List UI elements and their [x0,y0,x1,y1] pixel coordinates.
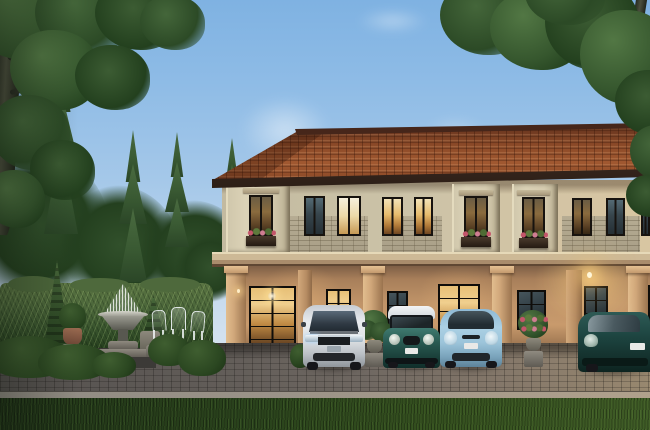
porch-column [226,267,246,348]
wheel [486,361,497,368]
column-capital [361,266,385,273]
wall-sconce [237,289,240,293]
terracotta-urn [63,328,82,345]
upper-window [304,196,325,236]
wheel [445,361,456,368]
hedge-top [8,276,58,292]
porch-cornice [212,252,650,267]
van-mirror [362,322,367,327]
flower-box [246,236,276,246]
teal-headlight [584,334,598,347]
column-capital [224,266,248,273]
upper-window [337,196,361,236]
license-plate [630,343,645,350]
upper-window [382,197,403,236]
march-grille [462,335,480,339]
mini-headlight [423,334,434,345]
ball-topiary [59,303,86,330]
light-blue-hatchback [440,303,502,369]
chandelier-glow [268,292,276,300]
license-plate [464,343,478,349]
garden-fountain [96,282,150,356]
march-intake [452,353,490,361]
wheel [586,364,598,372]
mini-grille [403,336,420,345]
wheel [350,362,361,370]
garden-bush [92,352,136,378]
van-grille [318,335,350,345]
fountain-spray [104,284,142,314]
mini-headlight [389,334,400,345]
fountain-bowl [102,316,144,330]
march-windshield [448,311,494,329]
column-capital [626,266,650,273]
wheel [388,362,398,368]
rendering-canvas [0,0,650,430]
teal-windshield [588,315,640,332]
column-capital [490,266,514,273]
dark-teal-hatchback [578,310,650,372]
license-plate [327,346,341,352]
van-mirror [301,322,306,327]
deciduous-tree-left [0,0,220,245]
license-plate [405,348,418,354]
wheel [425,362,435,368]
pendant-lamp [587,272,592,278]
teal-mini-car [383,306,440,368]
march-headlight [485,331,498,345]
wheel [307,362,318,370]
van-windshield [309,311,359,332]
garden-bush [178,340,226,376]
white-minivan [303,301,365,371]
march-headlight [444,331,457,345]
potted-red-flowers [516,308,550,370]
foreground-lawn [0,398,650,430]
deciduous-tree-right [430,0,650,240]
van-headlight [349,335,363,342]
van-intake [313,353,355,361]
van-headlight [305,335,319,342]
van-cowl [310,331,358,334]
